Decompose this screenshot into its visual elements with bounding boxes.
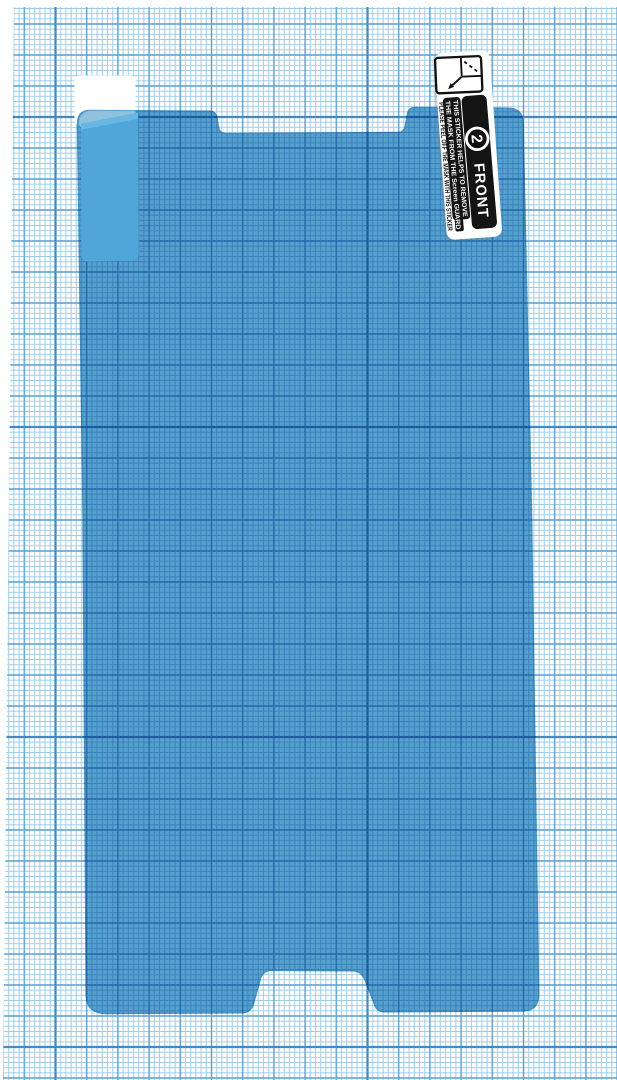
svg-text:2: 2 — [467, 134, 485, 144]
